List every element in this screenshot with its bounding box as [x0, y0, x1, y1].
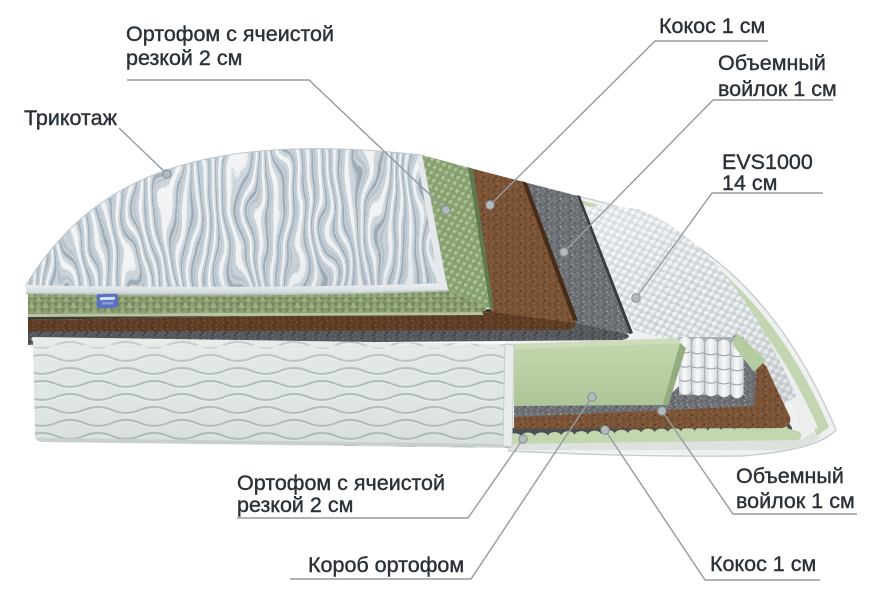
svg-text:Объемный: Объемный [736, 464, 844, 488]
svg-text:Короб ортофом: Короб ортофом [308, 553, 464, 577]
svg-text:войлок 1 см: войлок 1 см [736, 489, 855, 513]
svg-text:Ортофом с ячеистой: Ортофом с ячеистой [237, 471, 445, 495]
svg-text:Объемный: Объемный [718, 51, 826, 75]
svg-text:Трикотаж: Трикотаж [24, 106, 118, 130]
svg-text:Кокос 1 см: Кокос 1 см [659, 14, 765, 38]
svg-text:Кокос 1 см: Кокос 1 см [710, 552, 816, 576]
svg-text:резкой 2 см: резкой 2 см [126, 46, 242, 70]
svg-text:войлок 1 см: войлок 1 см [718, 77, 837, 101]
svg-text:14 см: 14 см [722, 171, 777, 195]
svg-text:Ортофом с ячеистой: Ортофом с ячеистой [126, 22, 334, 46]
svg-text:резкой 2 см: резкой 2 см [237, 493, 353, 517]
